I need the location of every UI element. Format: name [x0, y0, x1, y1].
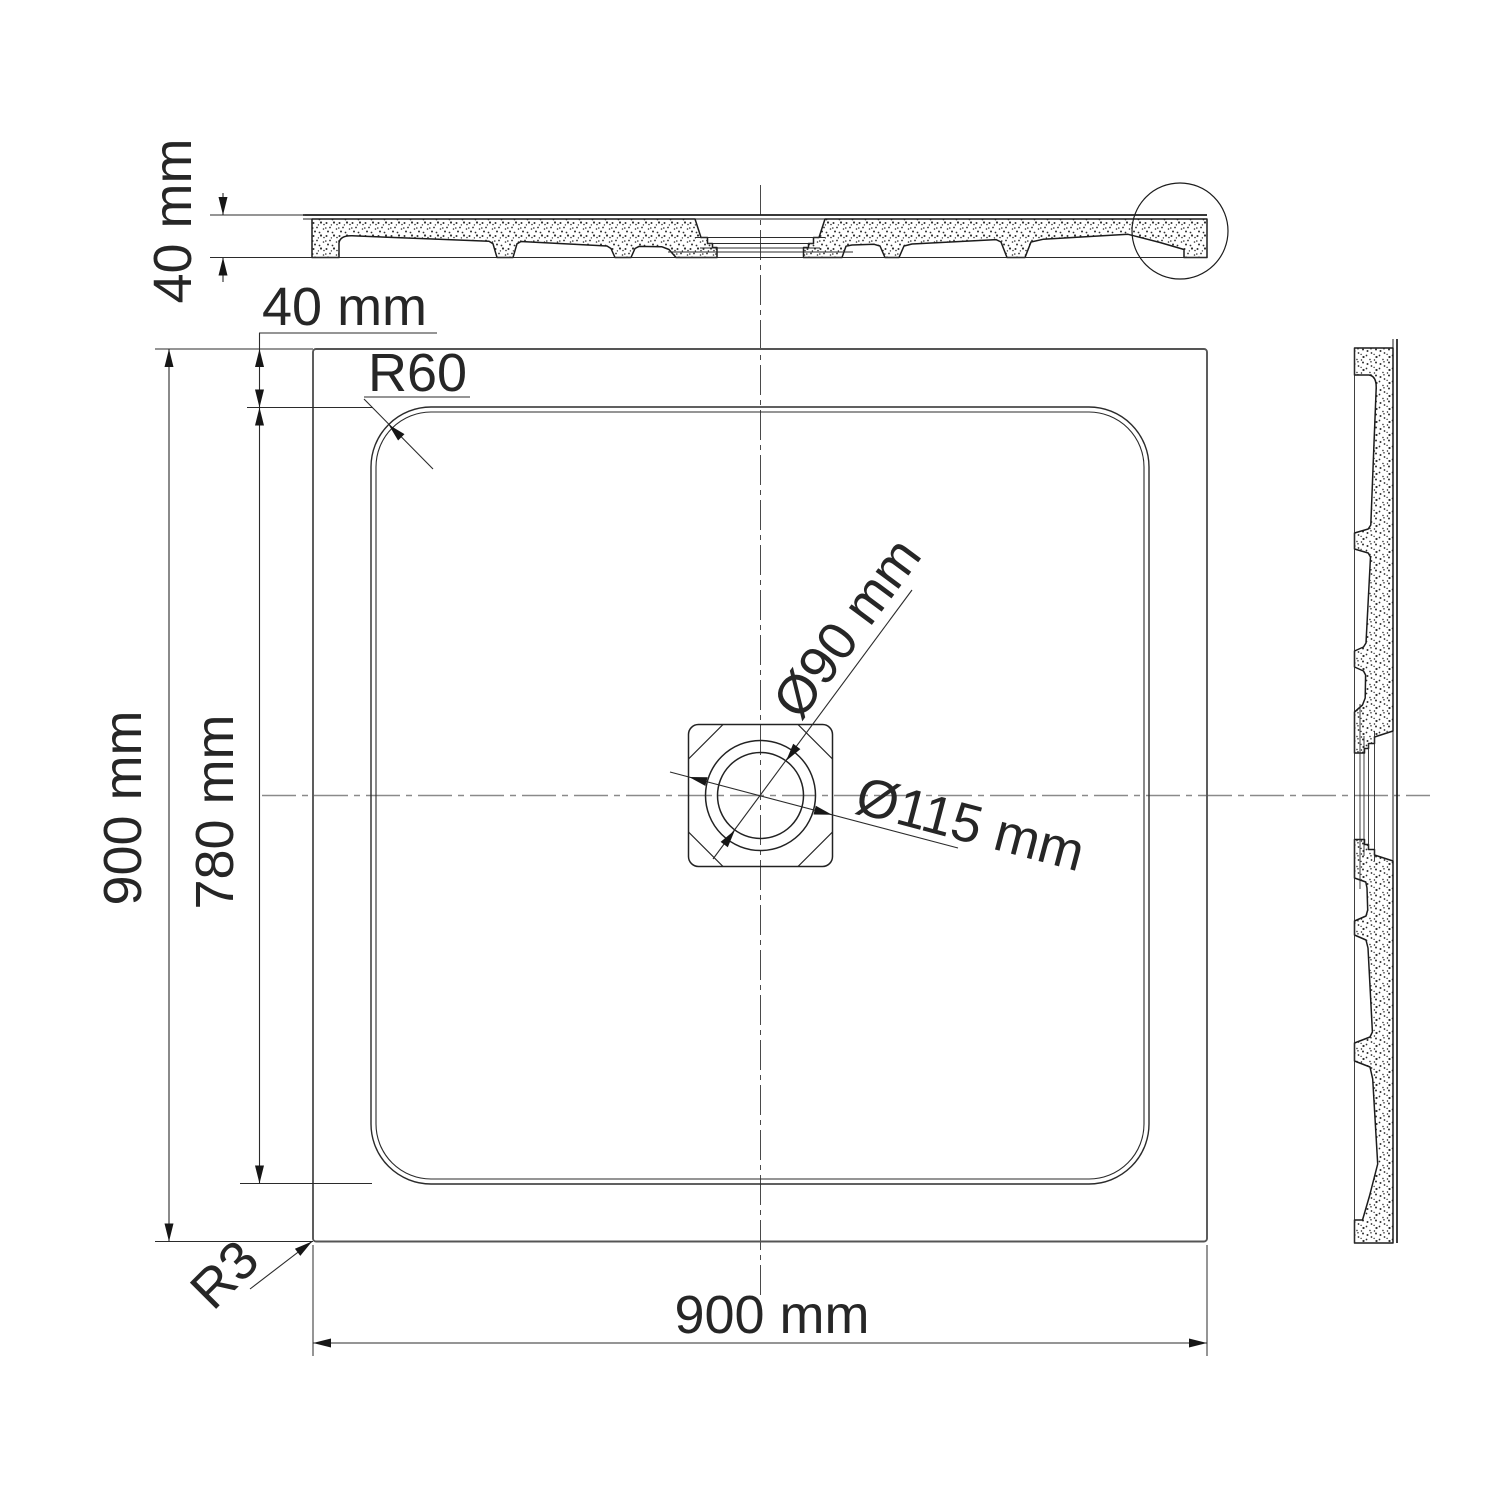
dim-outer-corner-radius: R3 — [179, 1229, 270, 1320]
side-section-view — [1355, 339, 1398, 1243]
dim-rim-inset: 40 mm — [262, 277, 427, 337]
dim-section-height: 40 mm — [143, 138, 203, 303]
dim-drain-flange-diameter: Ø115 mm — [850, 766, 1091, 884]
arrowheads — [165, 197, 1208, 1348]
dim-inner-height: 780 mm — [185, 714, 245, 909]
top-section-view — [303, 183, 1228, 279]
dim-inner-corner-radius: R60 — [368, 343, 467, 403]
dimension-labels: 40 mm 40 mm R60 900 mm 780 mm Ø90 mm Ø11… — [93, 138, 1091, 1345]
dim-overall-width: 900 mm — [674, 1285, 869, 1345]
technical-drawing: 40 mm 40 mm R60 900 mm 780 mm Ø90 mm Ø11… — [0, 0, 1500, 1500]
dim-overall-height: 900 mm — [93, 710, 153, 905]
drawing-page: 40 mm 40 mm R60 900 mm 780 mm Ø90 mm Ø11… — [0, 0, 1500, 1500]
dim-drain-diameter: Ø90 mm — [761, 527, 932, 729]
